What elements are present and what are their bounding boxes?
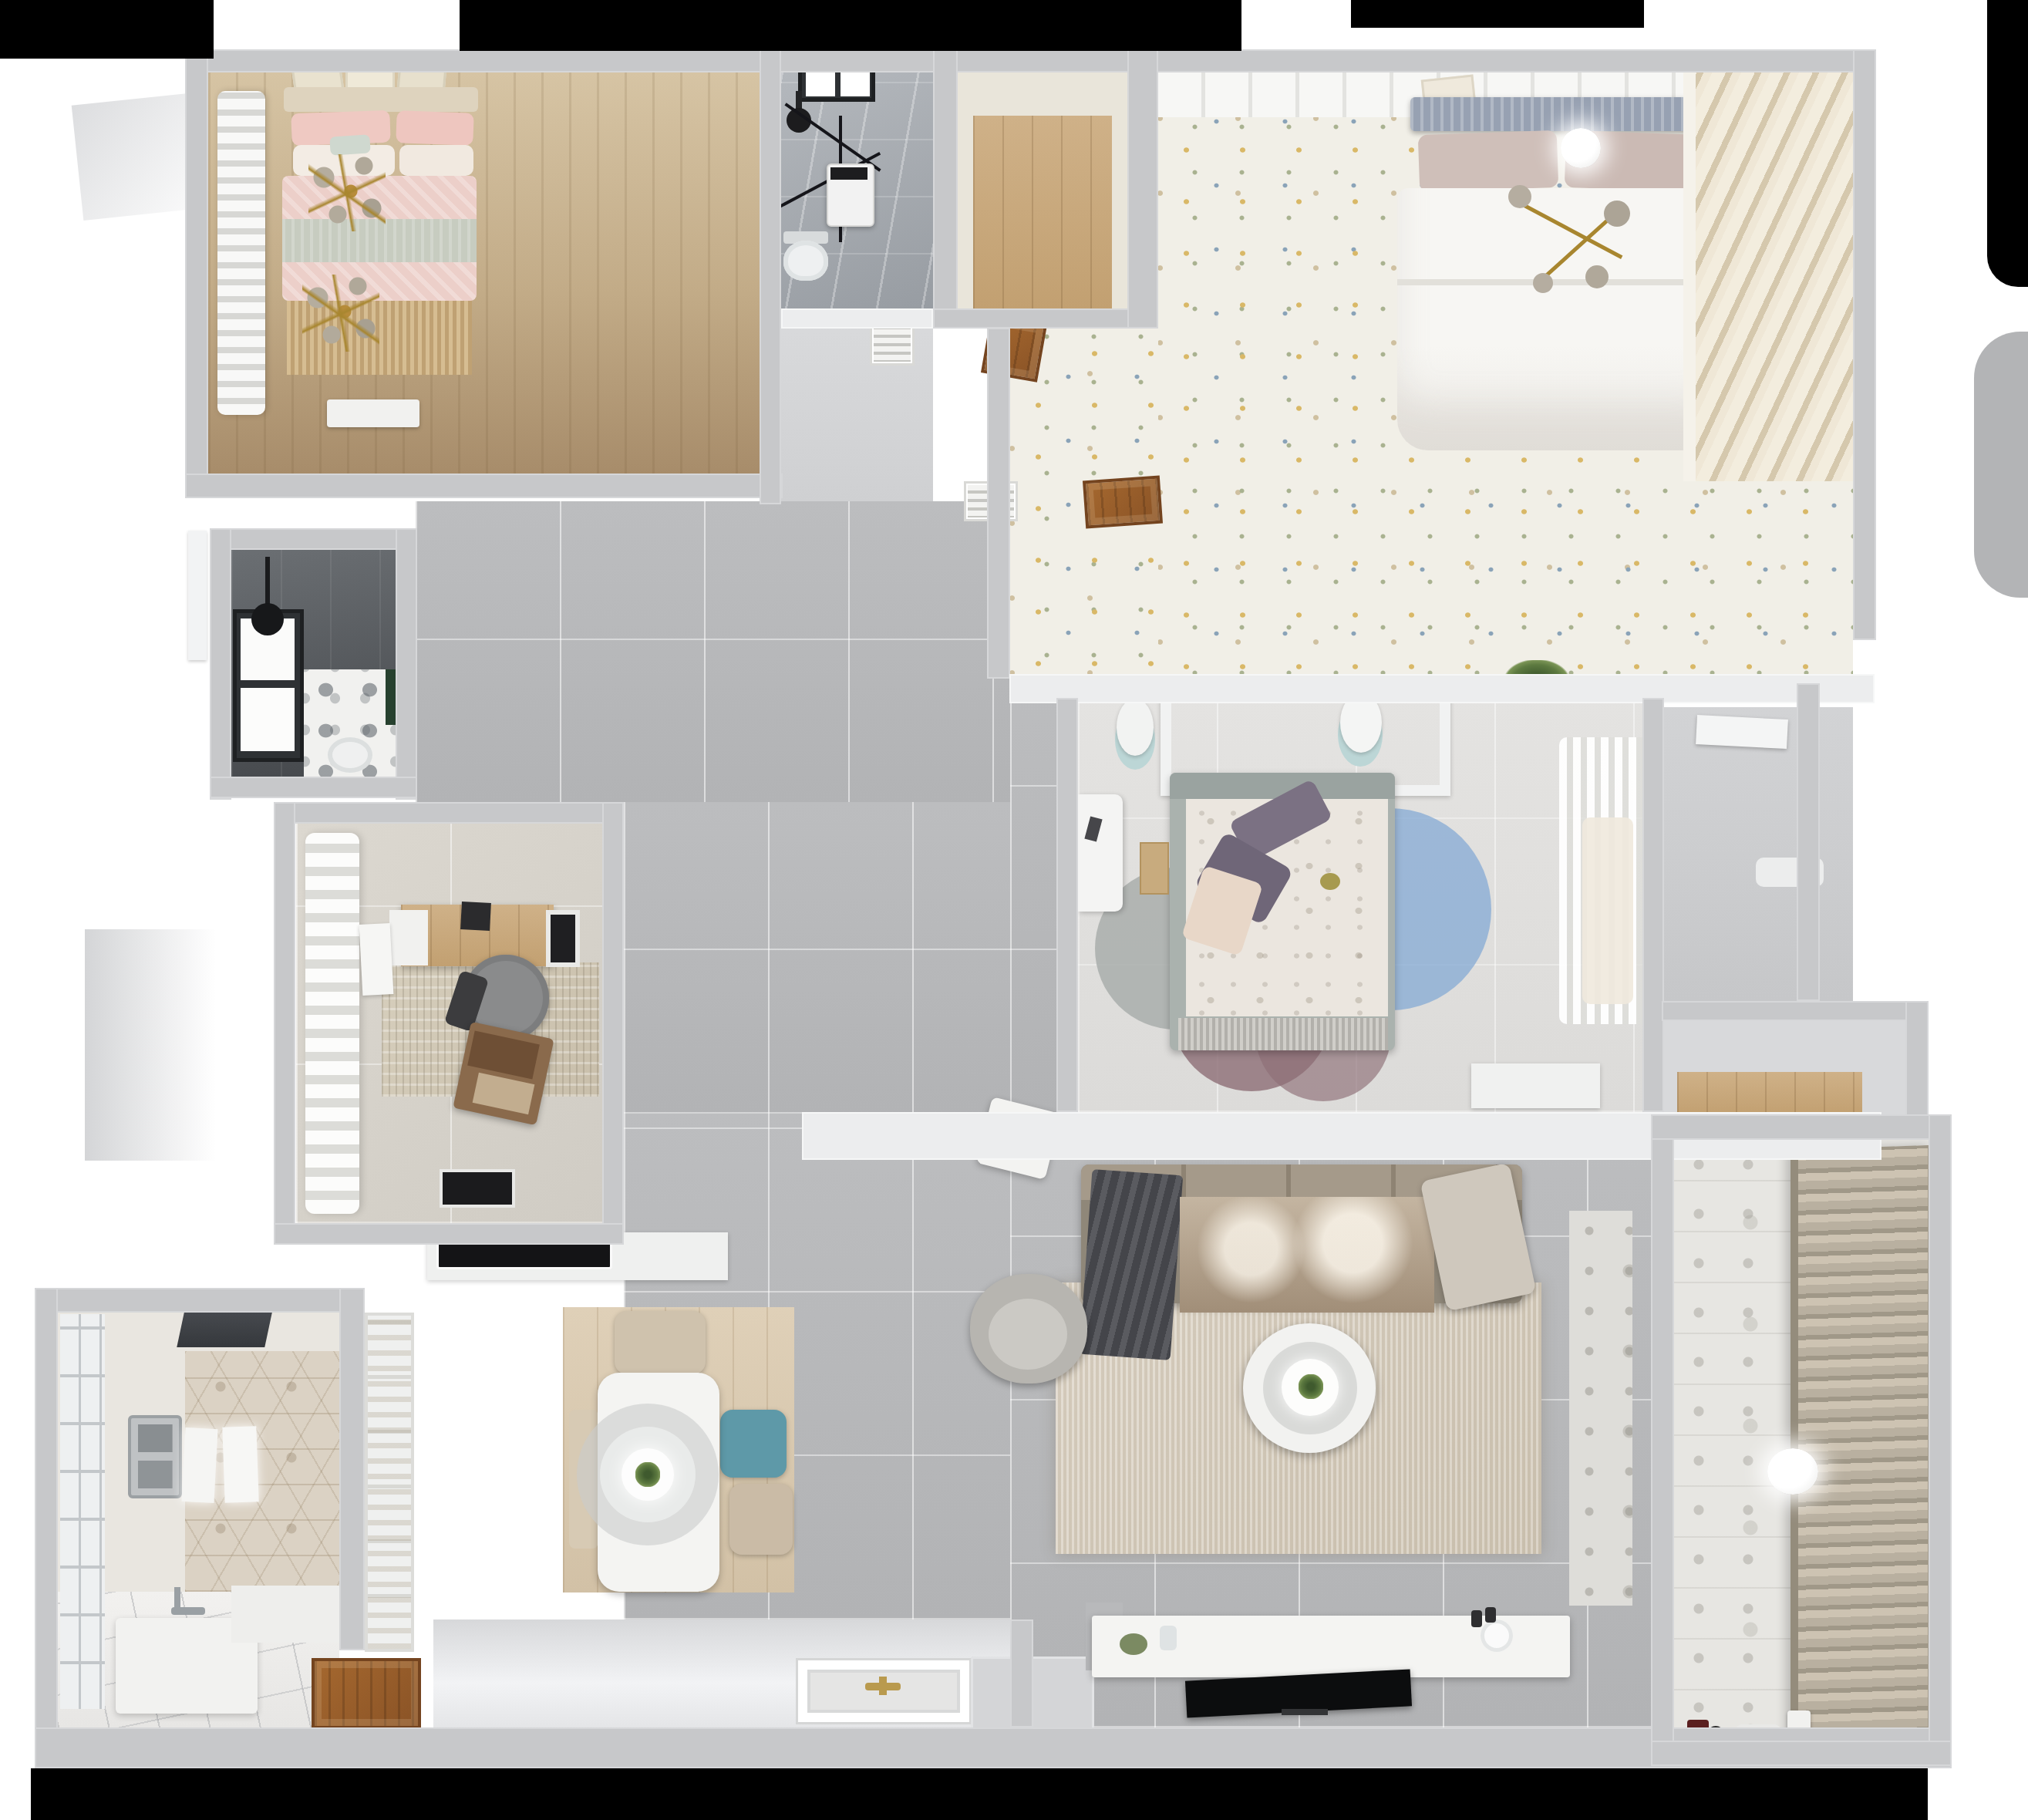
ac-vent-a bbox=[870, 324, 915, 366]
floorplan-image bbox=[0, 0, 2028, 1820]
bedroom-white-ball-light bbox=[1561, 128, 1601, 168]
door-white-left bbox=[188, 531, 207, 660]
bathroom-main-window-pane-2 bbox=[841, 72, 870, 96]
hall-floor-mid bbox=[624, 802, 1010, 1114]
wall-kitchen-top bbox=[35, 1288, 365, 1313]
wall-balcony-bottom bbox=[1651, 1741, 1952, 1766]
bg-grey-wedge-left bbox=[85, 929, 216, 1161]
living-console-bottle-1 bbox=[1471, 1610, 1482, 1627]
bedroom-center-nightstand bbox=[1140, 842, 1169, 895]
bedroom-center-desk bbox=[1078, 794, 1123, 912]
wall-left-bedroom-pink bbox=[185, 49, 208, 498]
bg-mask-top-left bbox=[0, 0, 214, 59]
study-white-canvas bbox=[359, 923, 394, 996]
bedroom-white-wardrobe bbox=[1683, 72, 1853, 481]
bedroom-pink-chandelier-2 bbox=[302, 275, 379, 352]
wall-bathroom-closet-divider bbox=[933, 49, 958, 312]
bedroom-white-duvet-fold bbox=[1397, 279, 1723, 285]
bedroom-white-headboard bbox=[1410, 97, 1722, 131]
bedroom-pink-headboard bbox=[284, 87, 478, 112]
living-console-pot bbox=[1481, 1619, 1513, 1652]
bedroom-center-stool-left-top bbox=[1117, 699, 1154, 756]
bg-grey-blob-right bbox=[1974, 332, 2028, 598]
wall-bedroom-pink-bottom bbox=[185, 474, 783, 498]
living-tv-stand bbox=[1282, 1709, 1328, 1715]
entry-gold-key-2 bbox=[879, 1677, 887, 1695]
bedroom-pink-pillow-teal bbox=[329, 134, 371, 156]
wall-bedroom-center-left bbox=[1056, 698, 1078, 1112]
wall-corridor-left bbox=[987, 328, 1010, 679]
living-console-plate bbox=[1120, 1633, 1147, 1655]
wall-bedroom-center-right bbox=[1642, 698, 1664, 1112]
kitchen-white-board-1 bbox=[182, 1427, 218, 1503]
wall-entry-right-stub bbox=[1010, 1619, 1033, 1727]
rightzone-door-white bbox=[1696, 715, 1788, 749]
bg-mask-top-center bbox=[460, 0, 1241, 51]
wall-study-left bbox=[274, 802, 295, 1245]
bathroom-small-green-accent bbox=[386, 669, 396, 725]
bg-mask-right-sliver bbox=[1987, 0, 2028, 287]
dining-centerpiece-plant bbox=[635, 1462, 660, 1487]
wall-bedroom-pink-right bbox=[760, 49, 781, 504]
wall-bathroom-small-left bbox=[210, 528, 231, 800]
bathroom-main-window-pane-1 bbox=[806, 72, 835, 96]
wall-study-right bbox=[602, 802, 624, 1245]
wall-kitchen-right bbox=[339, 1288, 365, 1650]
wall-top-outer bbox=[185, 49, 1876, 72]
wall-bathroom-small-top bbox=[210, 528, 417, 550]
wall-bathroom-small-bottom bbox=[210, 777, 417, 798]
niche-wood-shelf bbox=[1677, 1072, 1862, 1114]
bathroom-small-shower-arm bbox=[265, 557, 270, 606]
bathroom-small-shower-head bbox=[251, 603, 284, 635]
bedroom-center-hanging-clothes bbox=[1582, 817, 1633, 1004]
wall-rightzone-right bbox=[1797, 683, 1820, 1001]
wall-niche-right bbox=[1905, 1001, 1929, 1124]
wall-shelf-divider bbox=[1009, 674, 1875, 703]
wall-closet-bottom bbox=[933, 308, 1152, 329]
study-doormat bbox=[440, 1169, 515, 1208]
living-console-vase bbox=[1160, 1626, 1177, 1650]
balcony-drying-rack bbox=[1791, 1145, 1932, 1744]
wall-bedroom-white-right bbox=[1853, 49, 1876, 640]
study-monitor bbox=[460, 902, 491, 931]
bedroom-center-bed-fringe bbox=[1178, 1018, 1388, 1050]
bedroom-pink-pillow-4 bbox=[399, 145, 473, 176]
wall-balcony-right bbox=[1929, 1114, 1952, 1743]
wall-bathroom-main-bottom bbox=[781, 308, 933, 329]
bathroom-small-window-pane-2 bbox=[241, 688, 295, 751]
bedroom-pink-dresser bbox=[327, 399, 419, 427]
bedroom-white-chandelier-bulb-3 bbox=[1585, 265, 1609, 288]
bedroom-white-chandelier-bulb-1 bbox=[1508, 185, 1531, 208]
wall-study-top bbox=[274, 802, 624, 824]
bathroom-main-toilet bbox=[783, 241, 828, 281]
bedroom-white-duvet bbox=[1397, 188, 1723, 450]
wall-bathroom-small-right bbox=[396, 528, 417, 800]
wall-closet-right bbox=[1127, 49, 1158, 329]
kitchen-wood-mat bbox=[312, 1658, 421, 1729]
living-armchair-cushion bbox=[989, 1299, 1067, 1370]
wall-balcony-left bbox=[1651, 1114, 1674, 1766]
rightzone-floor bbox=[1664, 707, 1853, 1001]
bedroom-white-chandelier-bulb-4 bbox=[1533, 273, 1553, 293]
dining-chair-top bbox=[615, 1311, 706, 1374]
living-console-bottle-2 bbox=[1485, 1607, 1496, 1623]
study-black-frame bbox=[546, 910, 580, 967]
wall-kitchen-left bbox=[35, 1288, 58, 1751]
bedroom-center-dresser bbox=[1471, 1063, 1600, 1108]
bedroom-white-wardrobe-edge bbox=[1683, 72, 1696, 481]
bedroom-white-chandelier-bulb-2 bbox=[1604, 201, 1630, 227]
kitchen-faucet bbox=[171, 1607, 205, 1615]
wall-study-bottom bbox=[274, 1223, 624, 1245]
china-cabinet bbox=[365, 1313, 414, 1652]
living-sofa-throw bbox=[1080, 1169, 1183, 1360]
dining-chair-bottom bbox=[729, 1484, 793, 1555]
dining-chair-teal bbox=[720, 1410, 787, 1478]
living-sofa-seat bbox=[1180, 1197, 1434, 1313]
bedroom-pink-chandelier-1 bbox=[308, 154, 386, 231]
study-desk-white-return bbox=[389, 910, 428, 966]
bg-mask-bottom-bar bbox=[31, 1768, 1928, 1820]
kitchen-counter-right bbox=[231, 1586, 339, 1643]
bedroom-white-pillow-1 bbox=[1418, 130, 1558, 192]
kitchen-sink bbox=[128, 1415, 182, 1498]
wall-niche-top bbox=[1662, 1001, 1929, 1021]
bedroom-pink-pillow-2 bbox=[396, 110, 473, 145]
living-coffee-table-plant bbox=[1299, 1374, 1323, 1399]
bg-mask-top-right bbox=[1351, 0, 1644, 28]
closet-room-wood-floor bbox=[973, 116, 1112, 310]
wall-balcony-top bbox=[1651, 1114, 1952, 1140]
hall-floor-upper bbox=[416, 501, 1010, 804]
bedroom-pink-curtain bbox=[217, 91, 265, 415]
kitchen-glass-wall bbox=[60, 1314, 105, 1709]
study-curtain bbox=[305, 833, 359, 1214]
bedroom-center-gold-accent bbox=[1320, 873, 1340, 890]
kitchen-white-board-2 bbox=[222, 1426, 258, 1502]
balcony-ball-lamp bbox=[1767, 1448, 1818, 1495]
washing-machine-panel bbox=[830, 167, 867, 180]
runner-rug bbox=[1569, 1211, 1632, 1606]
wood-door-b bbox=[1083, 476, 1163, 529]
bathroom-small-toilet bbox=[328, 737, 372, 773]
